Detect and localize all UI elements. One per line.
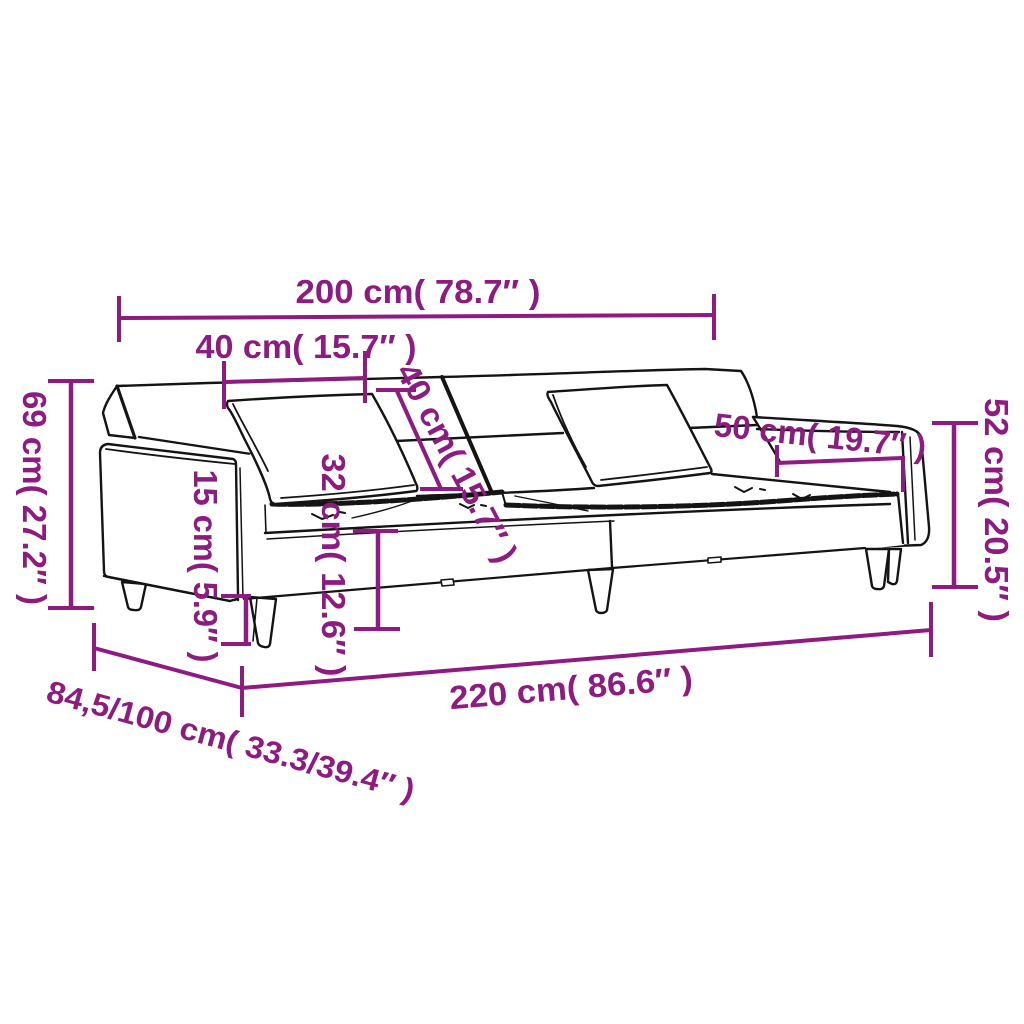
svg-text:52 cm( 20.5″ ): 52 cm( 20.5″ ) — [978, 398, 1015, 622]
svg-text:200 cm( 78.7″ ): 200 cm( 78.7″ ) — [296, 273, 541, 310]
svg-text:32 cm( 12.6″ ): 32 cm( 12.6″ ) — [315, 454, 352, 677]
svg-text:69 cm( 27.2″ ): 69 cm( 27.2″ ) — [16, 391, 53, 605]
svg-text:40 cm( 15.7″ ): 40 cm( 15.7″ ) — [196, 328, 417, 365]
svg-text:15 cm( 5.9″ ): 15 cm( 5.9″ ) — [187, 470, 224, 663]
